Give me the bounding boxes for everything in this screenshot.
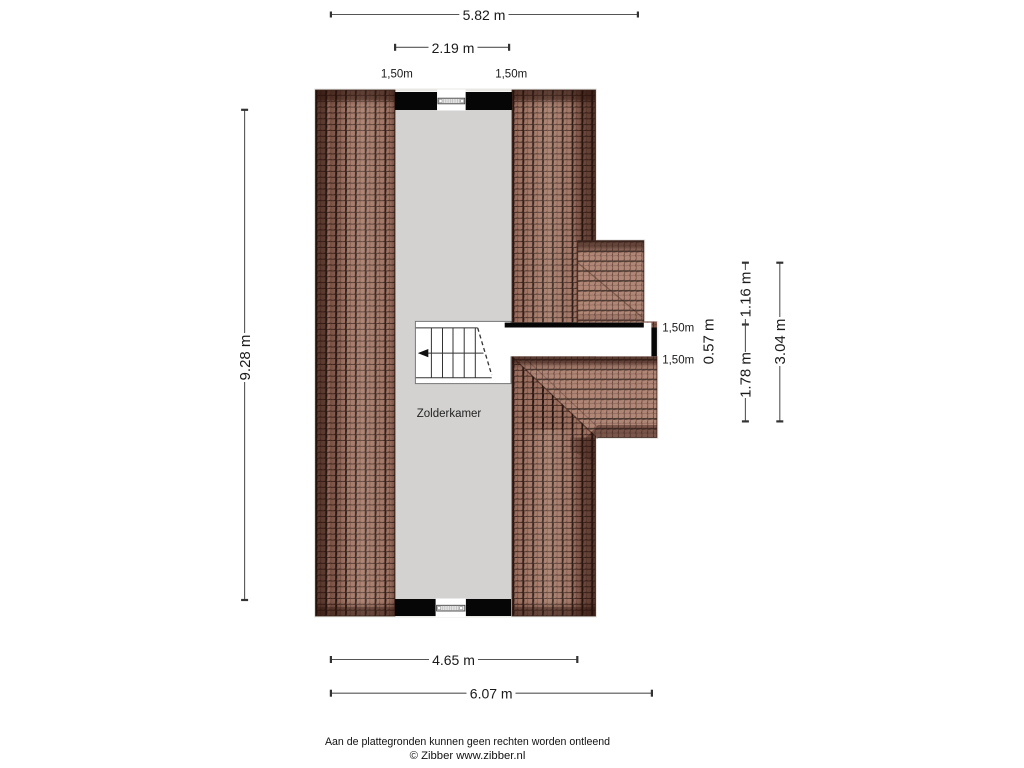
svg-text:1.78 m: 1.78 m: [738, 352, 755, 398]
svg-text:9.28 m: 9.28 m: [237, 335, 254, 381]
svg-text:6.07 m: 6.07 m: [470, 686, 513, 702]
svg-text:1,50m: 1,50m: [495, 69, 527, 81]
svg-text:1.16 m: 1.16 m: [738, 272, 755, 318]
svg-text:1,50m: 1,50m: [662, 355, 694, 367]
svg-text:4.65 m: 4.65 m: [432, 652, 475, 668]
svg-text:Aan de plattegronden kunnen ge: Aan de plattegronden kunnen geen rechten…: [325, 736, 610, 748]
svg-text:5.82 m: 5.82 m: [463, 7, 506, 23]
svg-text:3.04 m: 3.04 m: [772, 319, 789, 365]
svg-text:1,50m: 1,50m: [662, 322, 694, 334]
svg-text:0.57 m: 0.57 m: [700, 318, 717, 364]
svg-text:2.19 m: 2.19 m: [432, 40, 475, 56]
svg-text:1,50m: 1,50m: [381, 69, 413, 81]
svg-text:© Zibber www.zibber.nl: © Zibber www.zibber.nl: [410, 750, 526, 762]
svg-text:Zolderkamer: Zolderkamer: [417, 408, 482, 420]
